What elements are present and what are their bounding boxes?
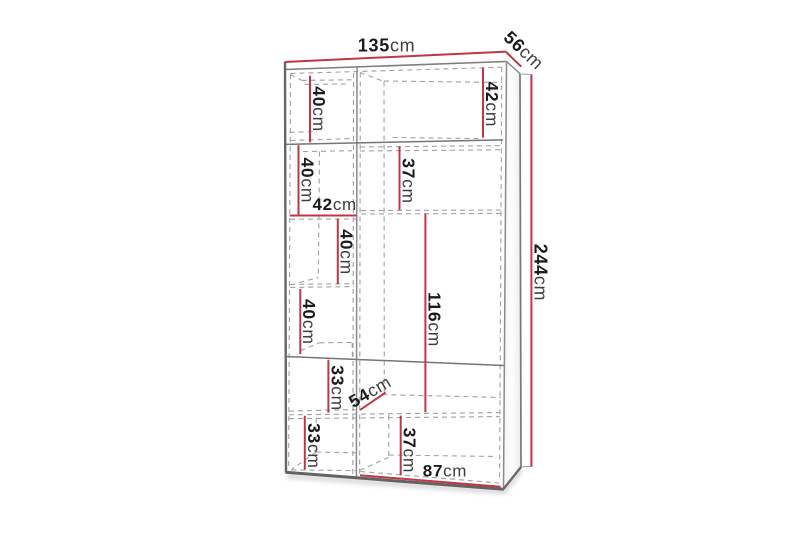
svg-text:33cm: 33cm: [327, 365, 347, 411]
svg-text:42cm: 42cm: [313, 195, 357, 214]
svg-text:244cm: 244cm: [531, 244, 551, 302]
svg-text:37cm: 37cm: [400, 428, 420, 474]
svg-text:40cm: 40cm: [299, 299, 319, 345]
svg-text:135cm: 135cm: [358, 36, 416, 56]
svg-text:40cm: 40cm: [337, 229, 357, 275]
svg-text:37cm: 37cm: [399, 158, 419, 204]
svg-text:116cm: 116cm: [424, 292, 444, 347]
svg-text:33cm: 33cm: [304, 423, 324, 469]
svg-text:40cm: 40cm: [309, 86, 329, 132]
svg-text:87cm: 87cm: [423, 462, 467, 481]
svg-text:42cm: 42cm: [482, 82, 502, 128]
